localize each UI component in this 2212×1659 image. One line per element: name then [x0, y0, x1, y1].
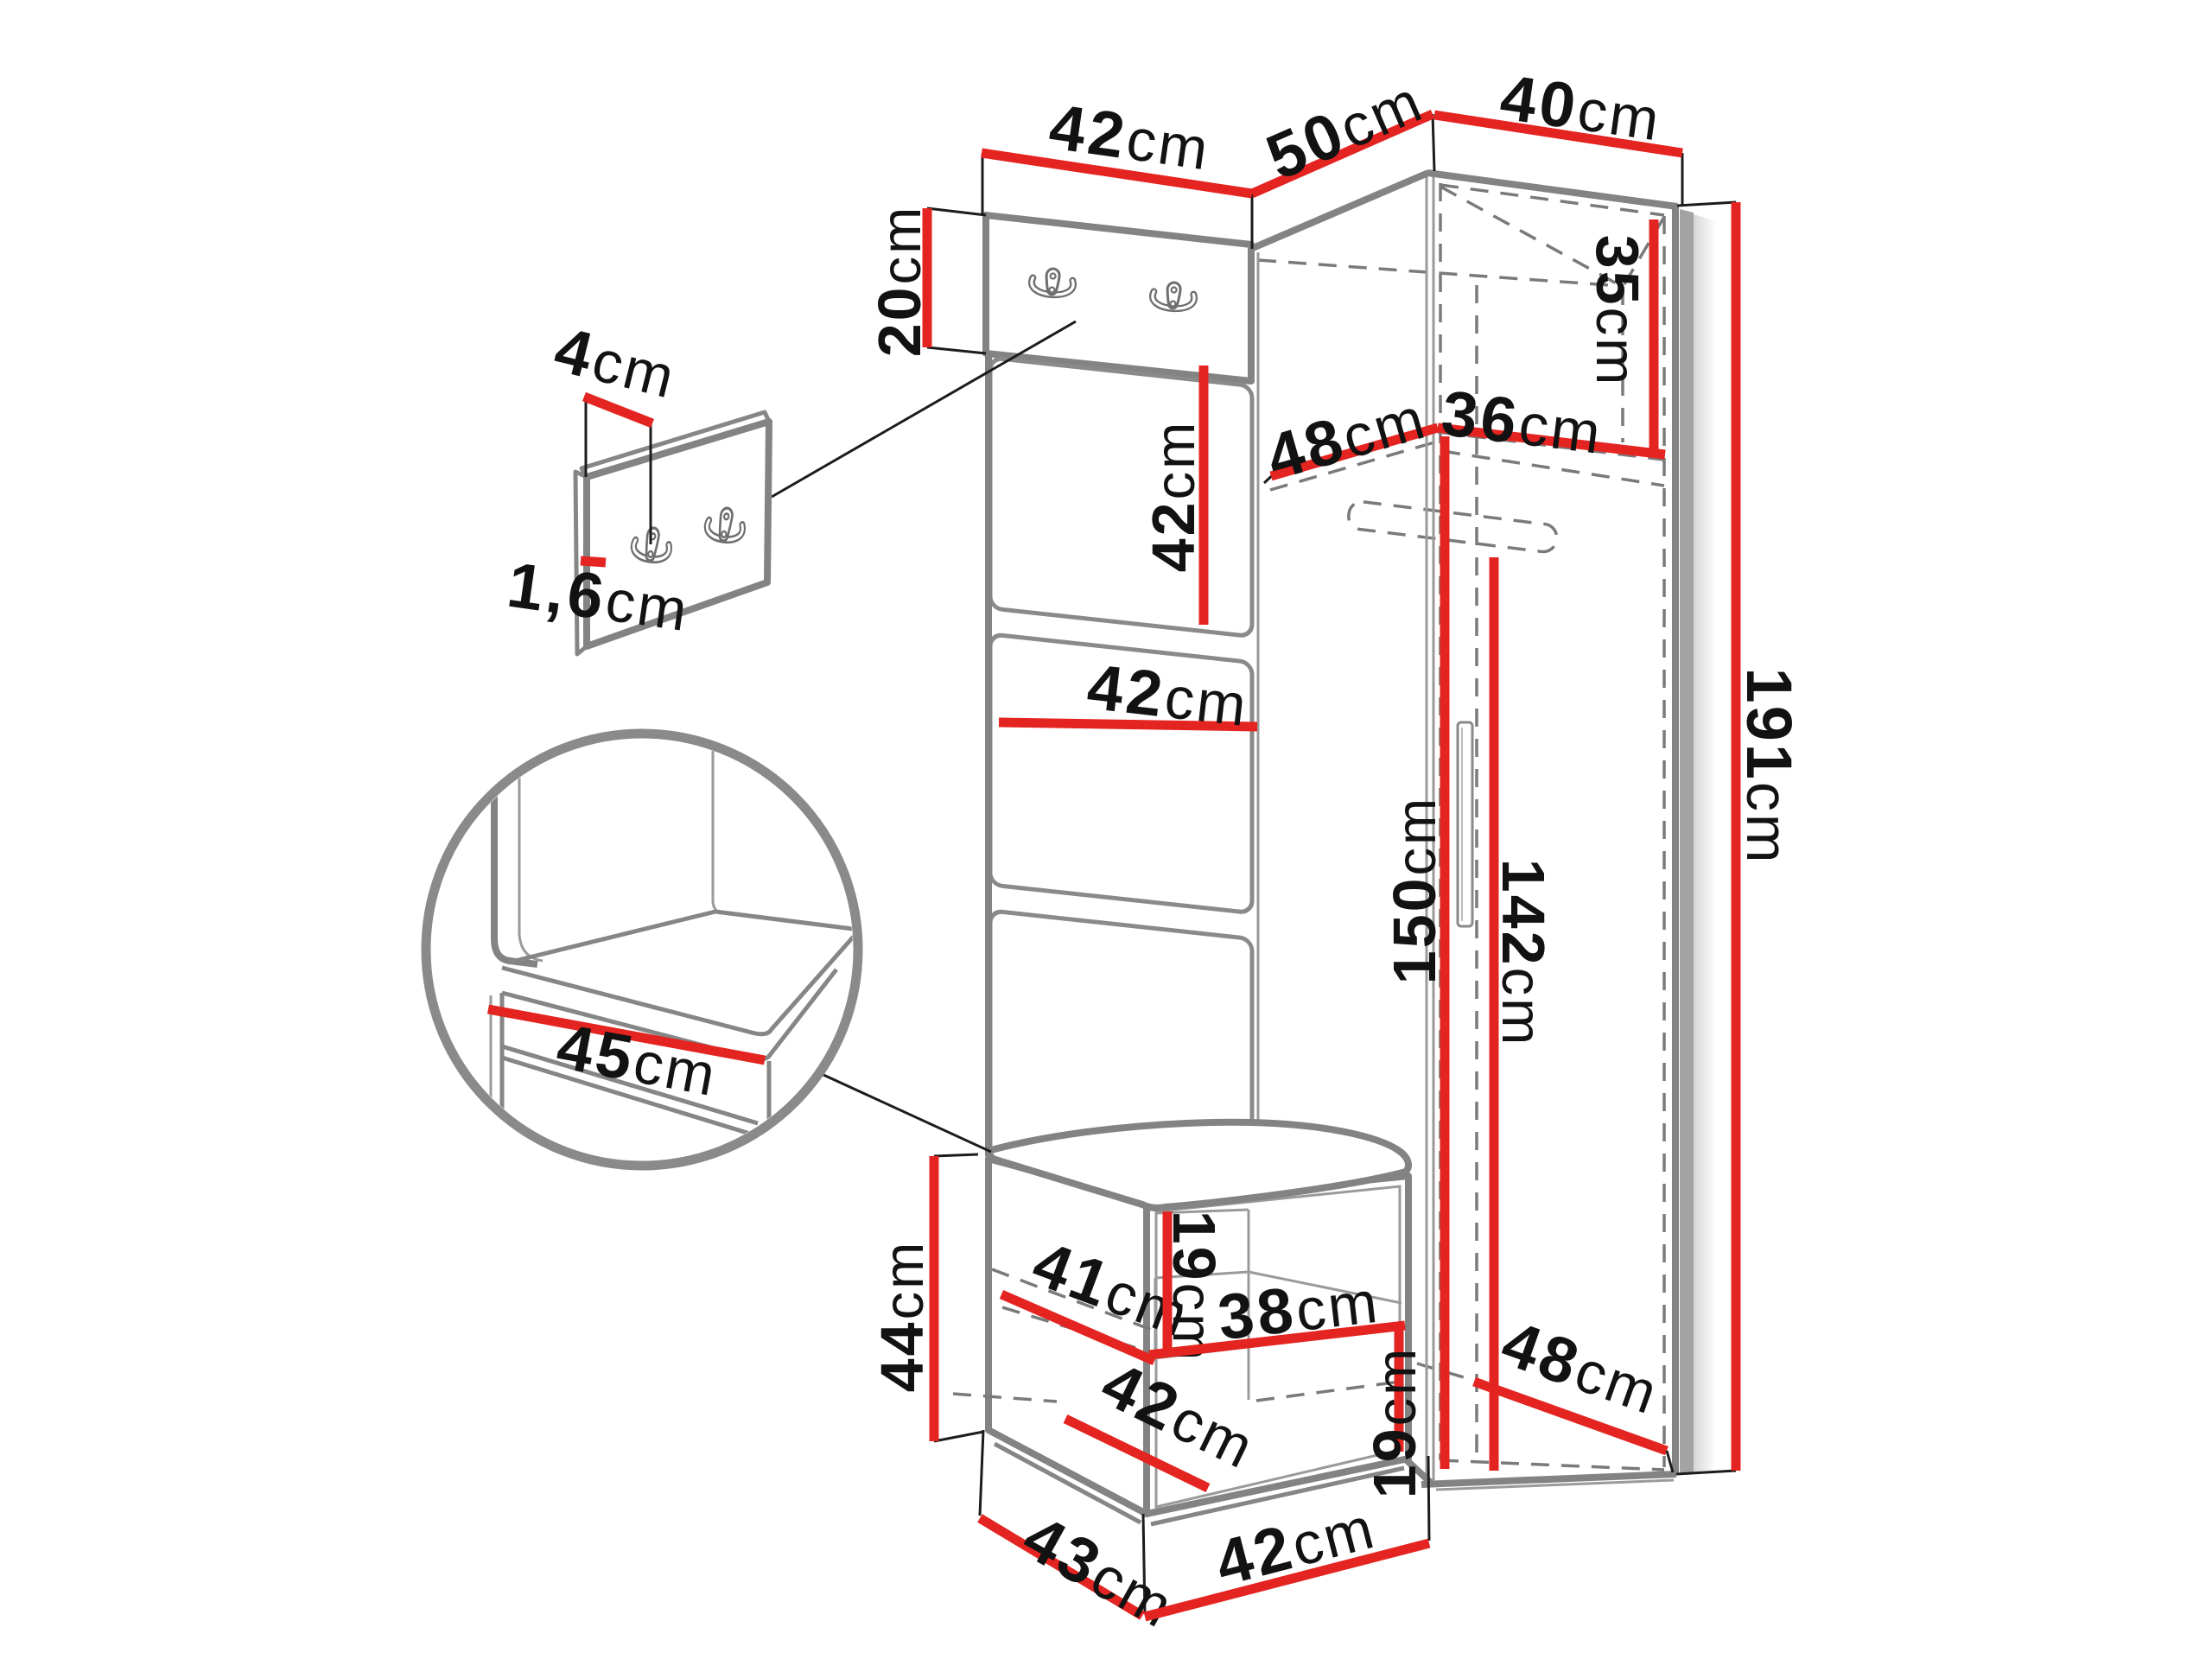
svg-text:150cm: 150cm	[1381, 796, 1448, 984]
svg-text:191cm: 191cm	[1733, 667, 1805, 865]
svg-text:20cm: 20cm	[866, 205, 933, 358]
svg-text:44cm: 44cm	[868, 1240, 936, 1393]
svg-text:42cm: 42cm	[1140, 420, 1207, 573]
svg-text:35cm: 35cm	[1584, 235, 1651, 388]
svg-text:19cm: 19cm	[1361, 1346, 1428, 1499]
svg-text:142cm: 142cm	[1490, 859, 1557, 1047]
